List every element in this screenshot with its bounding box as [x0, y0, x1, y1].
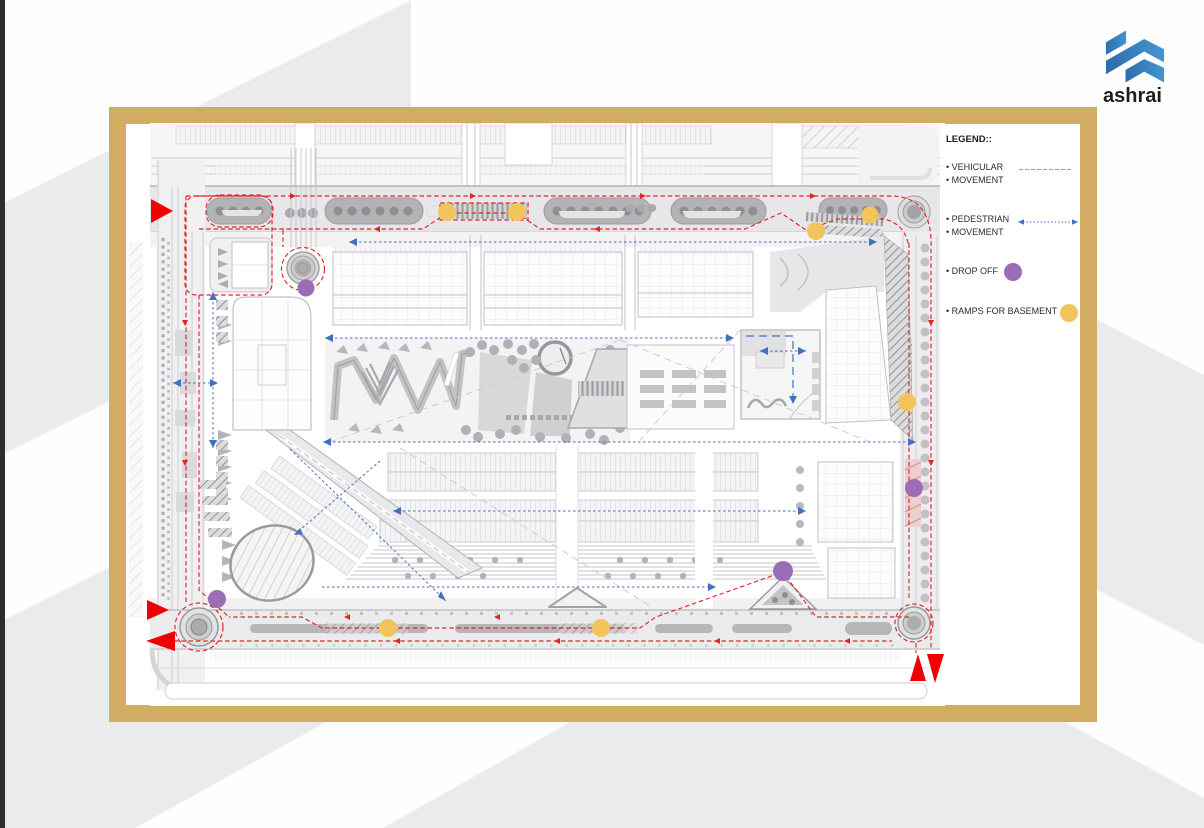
svg-text:ashrai: ashrai: [1103, 85, 1162, 104]
